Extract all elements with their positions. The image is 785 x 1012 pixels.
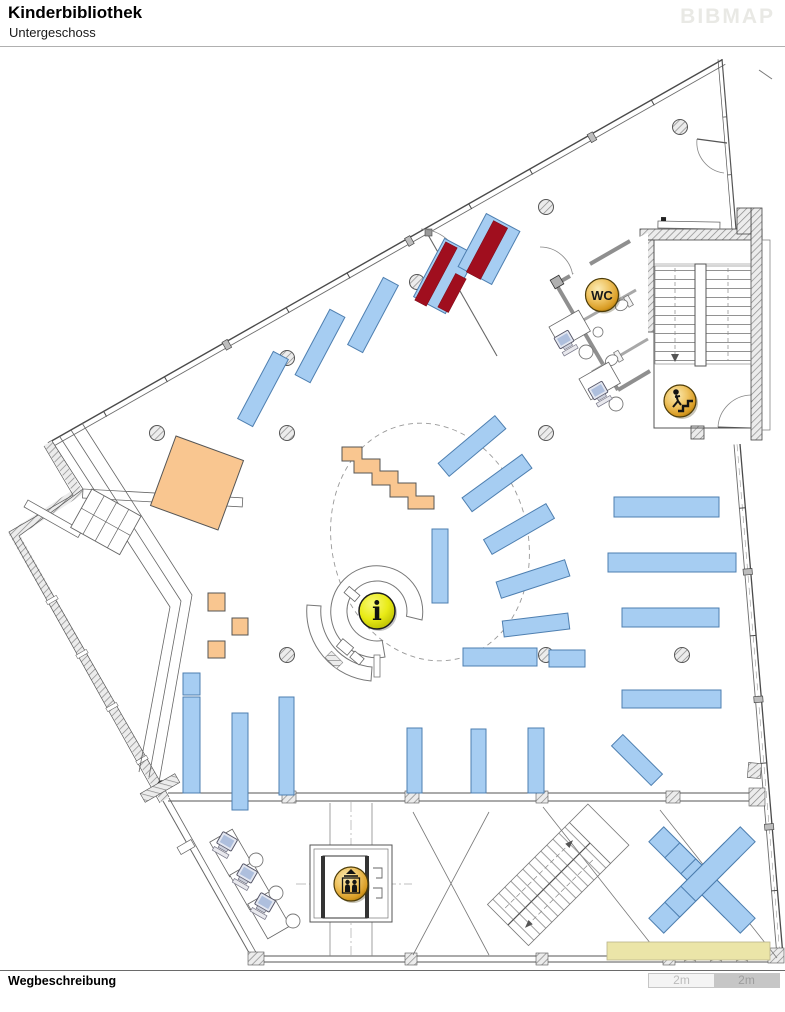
play-podium (151, 436, 244, 530)
bibmap-logo: BIBMAP (680, 5, 775, 29)
stairwell-upper (640, 208, 770, 440)
display-shelf-cluster (649, 827, 755, 933)
svg-text:WC: WC (591, 288, 613, 303)
svg-text:i: i (372, 597, 382, 627)
floor-subtitle: Untergeschoss (9, 25, 96, 40)
columns (150, 120, 690, 663)
page-title: Kinderbibliothek (8, 3, 142, 23)
exterior-tick (759, 70, 772, 79)
stairs-lower (487, 804, 628, 945)
pc-workstations (210, 829, 300, 939)
scale-segment-light: 2m (649, 974, 714, 987)
header: Kinderbibliothek Untergeschoss BIBMAP (0, 0, 785, 47)
route-description-label: Wegbeschreibung (8, 974, 116, 988)
seating-steps (342, 447, 434, 509)
wc-room (549, 233, 650, 411)
scale-segment-dark: 2m (714, 974, 779, 987)
footer: Wegbeschreibung 2m 2m (0, 970, 785, 1012)
scale-bar: 2m 2m (648, 973, 780, 988)
floorplan-map: WC i (0, 0, 785, 1011)
stairs-icon[interactable] (664, 385, 698, 419)
info-icon[interactable]: i (359, 593, 397, 631)
reading-mat (607, 942, 770, 960)
